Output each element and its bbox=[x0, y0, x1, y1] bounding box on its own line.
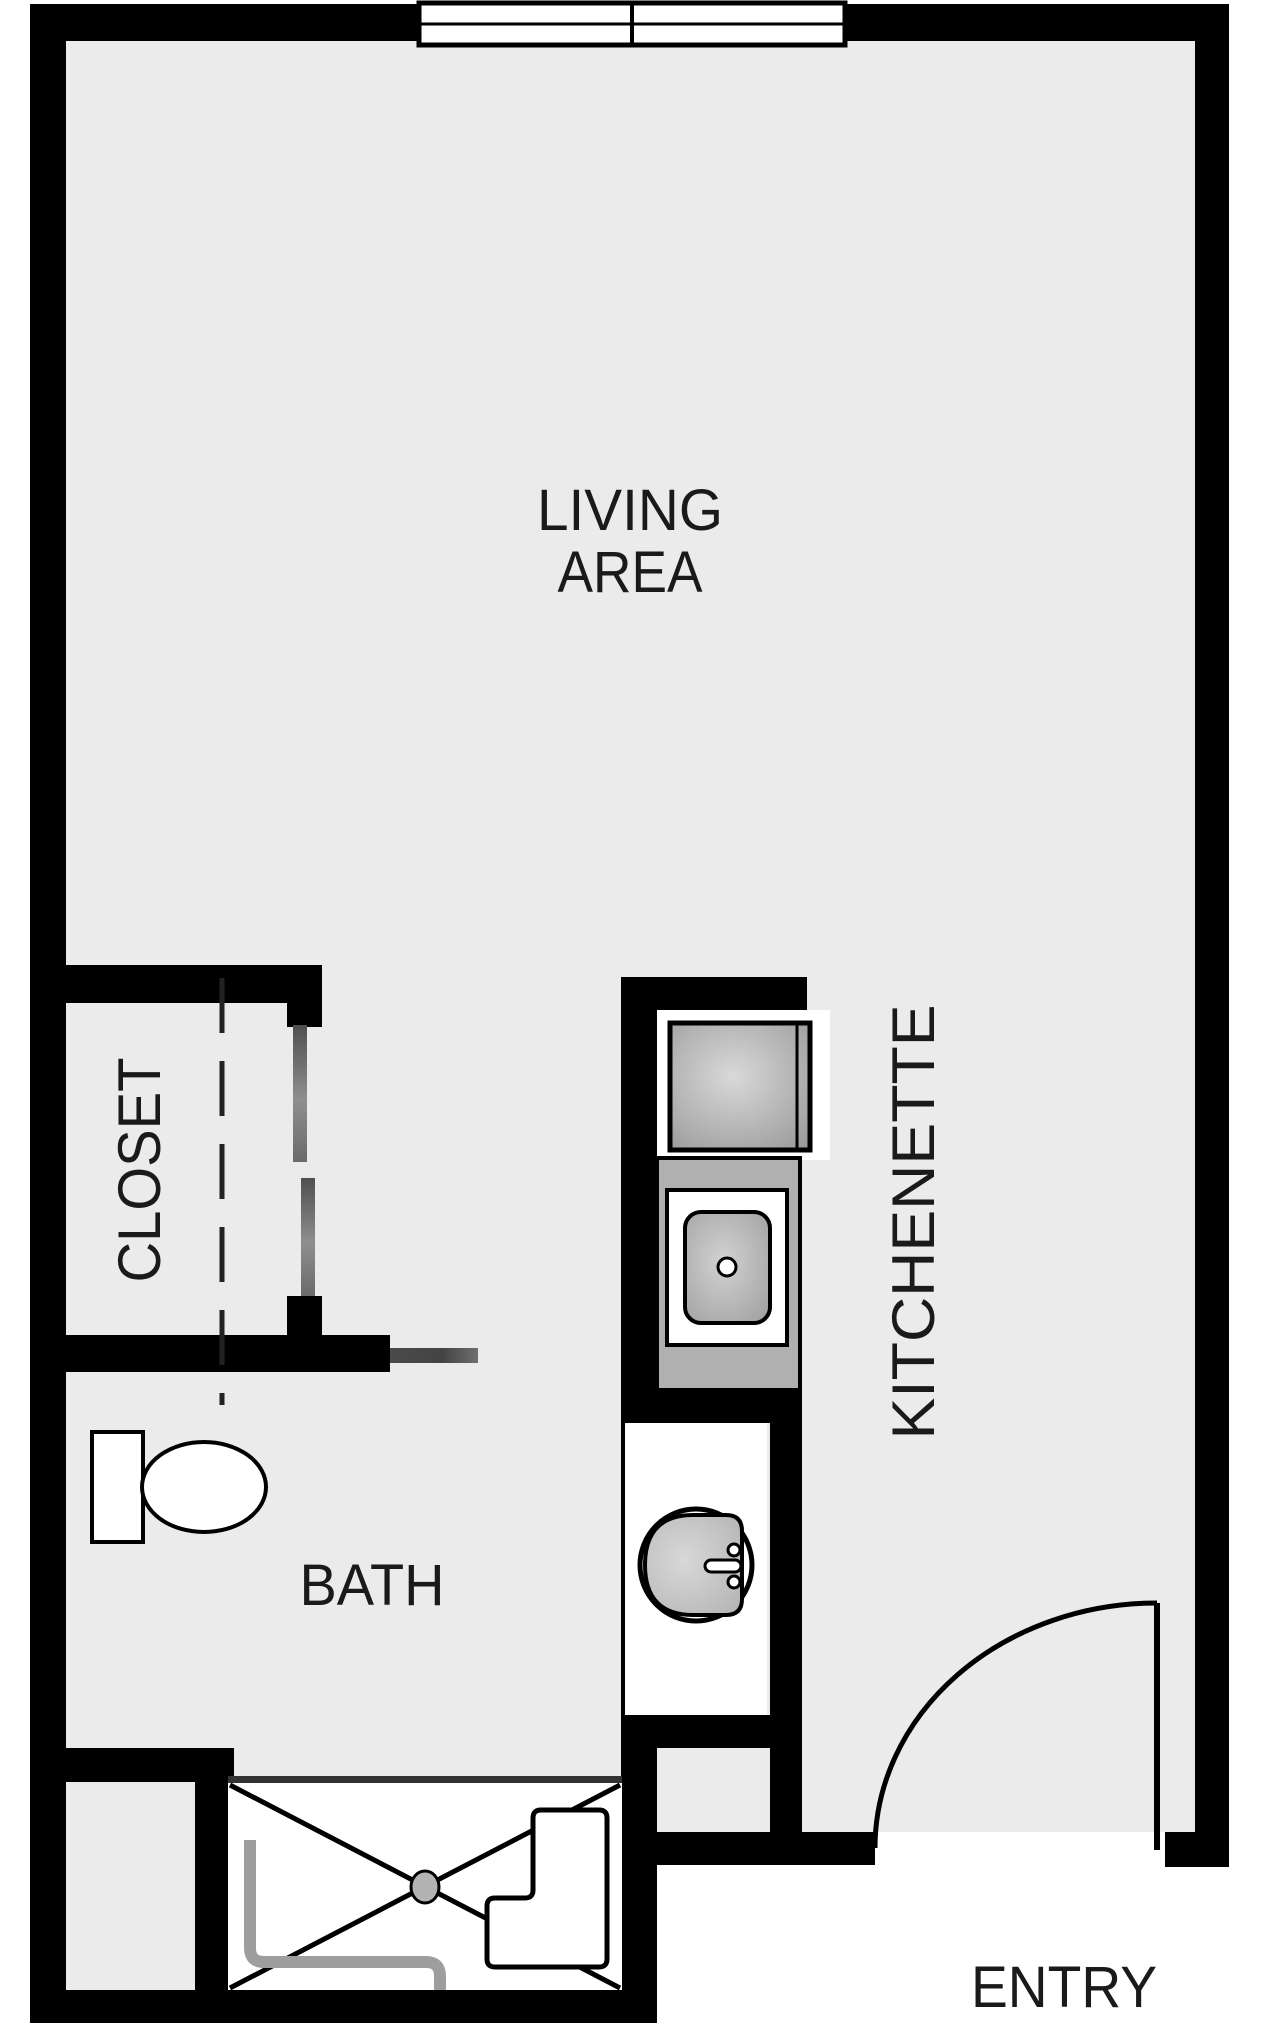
shower-curb bbox=[228, 1776, 622, 1783]
toilet-bowl bbox=[142, 1442, 266, 1532]
faucet-knob-top bbox=[728, 1544, 740, 1556]
wall-closet-top bbox=[66, 965, 322, 1003]
bath-sliding-door bbox=[390, 1348, 478, 1363]
living-area-label-line2: AREA bbox=[558, 540, 703, 605]
closet-label: CLOSET bbox=[106, 1058, 173, 1283]
closet-bifold-panel-bottom bbox=[301, 1178, 315, 1296]
floor-plan-canvas: LIVING AREA CLOSET KITCHENETTE BATH ENTR… bbox=[0, 0, 1272, 2042]
floor-plan: LIVING AREA CLOSET KITCHENETTE BATH ENTR… bbox=[0, 0, 1272, 2042]
kitchenette-label: KITCHENETTE bbox=[880, 1005, 947, 1440]
shower-drain bbox=[411, 1871, 439, 1903]
toilet bbox=[92, 1432, 266, 1542]
toilet-tank bbox=[92, 1432, 143, 1542]
wall-vanity-top bbox=[621, 1390, 802, 1423]
closet-bifold-panel-top bbox=[293, 1025, 307, 1162]
kitchen-sink-drain bbox=[718, 1258, 736, 1276]
wall-bottom-entry-left bbox=[621, 1832, 875, 1865]
wall-closet-stub-bottom bbox=[287, 1296, 322, 1337]
wall-left bbox=[30, 4, 66, 2023]
wall-kitchen-right-lower bbox=[770, 1390, 802, 1832]
shower bbox=[228, 1776, 622, 1990]
faucet-handle bbox=[705, 1560, 741, 1572]
wall-bottom-entry-corner bbox=[1165, 1832, 1229, 1867]
wall-kitchen-top bbox=[621, 977, 807, 1010]
wall-vanity-bottom bbox=[621, 1715, 802, 1748]
wall-bath-lower-left bbox=[66, 1748, 234, 1782]
bathroom-vanity bbox=[625, 1423, 767, 1715]
window bbox=[419, 3, 845, 45]
bath-label: BATH bbox=[300, 1553, 445, 1618]
wall-closet-stub-top bbox=[287, 1003, 322, 1027]
wall-bottom-shower bbox=[30, 1990, 657, 2023]
living-area-label-line1: LIVING bbox=[537, 478, 723, 543]
range bbox=[670, 1023, 810, 1150]
wall-shower-left bbox=[195, 1782, 228, 1990]
wall-closet-bottom bbox=[30, 1335, 390, 1372]
faucet-knob-bottom bbox=[728, 1576, 740, 1588]
wall-right bbox=[1195, 4, 1229, 1867]
entry-label: ENTRY bbox=[971, 1955, 1157, 2020]
